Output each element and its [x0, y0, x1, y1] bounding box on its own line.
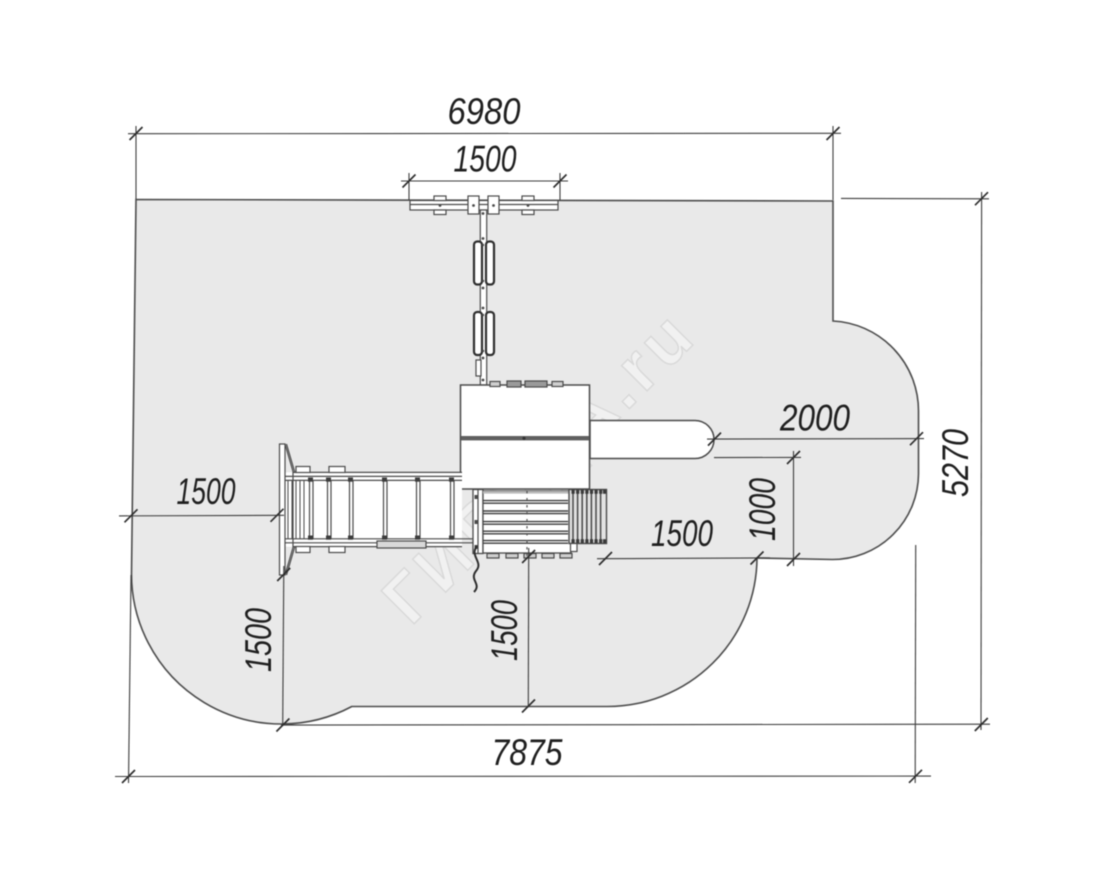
- svg-text:1500: 1500: [454, 139, 517, 180]
- svg-text:1500: 1500: [177, 471, 236, 512]
- svg-text:1500: 1500: [484, 600, 525, 661]
- svg-text:2000: 2000: [779, 398, 850, 439]
- svg-text:1500: 1500: [238, 608, 279, 672]
- svg-text:7875: 7875: [492, 732, 563, 773]
- svg-text:1000: 1000: [742, 478, 783, 541]
- svg-text:6980: 6980: [448, 91, 521, 132]
- svg-text:5270: 5270: [935, 429, 976, 497]
- svg-text:1500: 1500: [651, 513, 713, 554]
